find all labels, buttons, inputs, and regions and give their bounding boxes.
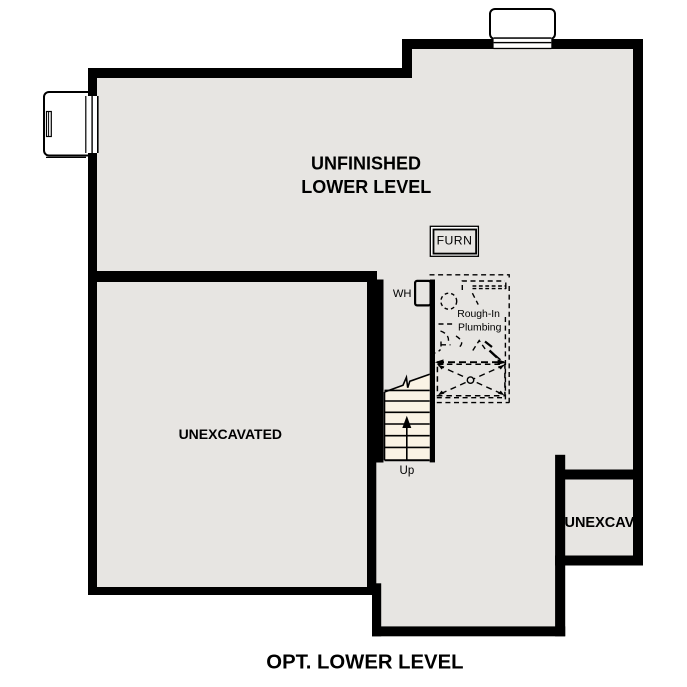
svg-text:FURN: FURN bbox=[437, 234, 473, 248]
svg-text:LOWER LEVEL: LOWER LEVEL bbox=[301, 177, 431, 197]
svg-text:Up: Up bbox=[400, 465, 415, 477]
svg-text:Plumbing: Plumbing bbox=[458, 322, 502, 333]
svg-text:UNFINISHED: UNFINISHED bbox=[311, 154, 421, 174]
svg-text:OPT. LOWER LEVEL: OPT. LOWER LEVEL bbox=[266, 652, 463, 674]
svg-text:Rough-In: Rough-In bbox=[457, 309, 500, 320]
svg-text:WH: WH bbox=[393, 288, 412, 300]
svg-text:UNEXCAV: UNEXCAV bbox=[564, 515, 634, 531]
svg-text:UNEXCAVATED: UNEXCAVATED bbox=[179, 426, 282, 442]
